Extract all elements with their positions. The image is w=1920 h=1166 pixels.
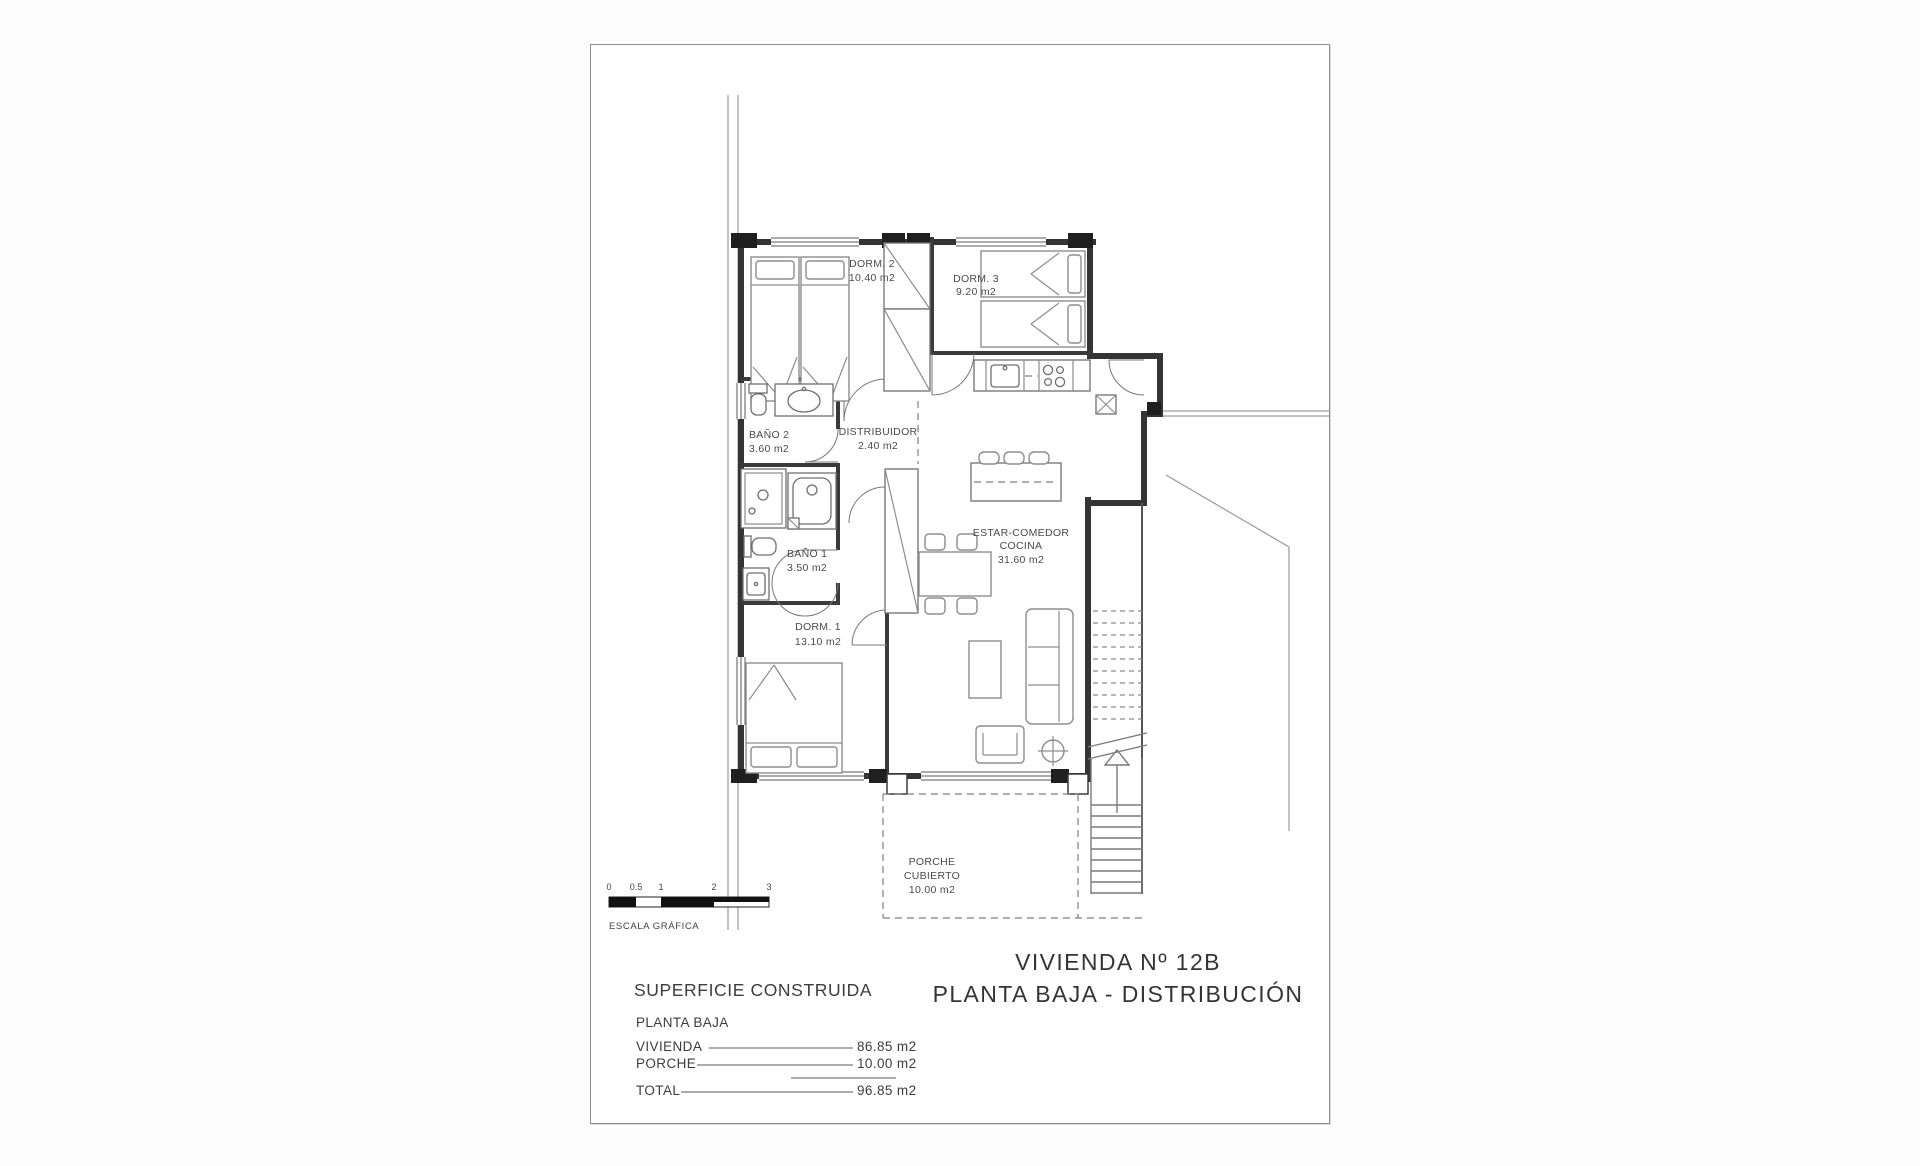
summary-total-value: 96.85 m2 xyxy=(857,1083,917,1098)
scale-tick-2: 2 xyxy=(711,882,716,892)
summary-row-porche-value: 10.00 m2 xyxy=(857,1056,917,1071)
scale-tick-1: 1 xyxy=(658,882,663,892)
summary-subtitle: PLANTA BAJA xyxy=(636,1015,729,1030)
sofa-icon xyxy=(1026,609,1073,724)
area-summary: SUPERFICIE CONSTRUIDA PLANTA BAJA VIVIEN… xyxy=(634,980,917,1098)
dorm2-area: 10.40 m2 xyxy=(849,272,895,284)
drawing-title: VIVIENDA Nº 12B PLANTA BAJA - DISTRIBUCI… xyxy=(933,949,1304,1007)
porche-label-line2: CUBIERTO xyxy=(904,870,960,882)
scale-tick-0: 0 xyxy=(606,882,611,892)
scale-bar: 0 0.5 1 2 3 ESCALA GRÁFICA xyxy=(606,882,771,932)
bano1-fixtures xyxy=(741,469,836,600)
estar-label-line2: COCINA xyxy=(1000,540,1043,552)
kitchen-counter xyxy=(974,360,1116,414)
summary-title: SUPERFICIE CONSTRUIDA xyxy=(634,980,872,1000)
title-line1: VIVIENDA Nº 12B xyxy=(1015,949,1221,975)
summary-row-porche-label: PORCHE xyxy=(636,1056,696,1071)
dorm1-bed xyxy=(746,663,842,773)
coffee-table-icon xyxy=(969,641,1001,698)
dining-set xyxy=(919,534,991,614)
bano1-area: 3.50 m2 xyxy=(787,562,827,574)
title-line2: PLANTA BAJA - DISTRIBUCIÓN xyxy=(933,981,1304,1007)
dorm1-area: 13.10 m2 xyxy=(795,636,841,648)
scale-tick-3: 3 xyxy=(766,882,771,892)
floor-plan-drawing: DORM. 2 10.40 m2 DORM. 3 9.20 m2 BAÑO 2 … xyxy=(591,45,1329,1123)
stairs xyxy=(1088,611,1147,894)
round-table-icon xyxy=(1038,736,1068,766)
estar-area: 31.60 m2 xyxy=(998,554,1044,566)
dorm3-beds xyxy=(981,251,1085,347)
porche-label-line1: PORCHE xyxy=(909,856,956,868)
distribuidor-label: DISTRIBUIDOR xyxy=(839,426,918,438)
summary-row-vivienda-value: 86.85 m2 xyxy=(857,1039,917,1054)
dorm3-area: 9.20 m2 xyxy=(956,286,996,298)
porche-area: 10.00 m2 xyxy=(909,884,955,896)
drawing-sheet: DORM. 2 10.40 m2 DORM. 3 9.20 m2 BAÑO 2 … xyxy=(590,44,1330,1124)
bano2-fixtures xyxy=(749,384,833,416)
dorm3-label: DORM. 3 xyxy=(953,273,999,285)
estar-label-line1: ESTAR-COMEDOR xyxy=(973,527,1070,539)
scale-caption: ESCALA GRÁFICA xyxy=(609,921,699,932)
scale-tick-05: 0.5 xyxy=(630,882,643,892)
dorm2-label: DORM. 2 xyxy=(849,258,895,270)
bano2-label: BAÑO 2 xyxy=(749,428,789,441)
distribuidor-area: 2.40 m2 xyxy=(858,440,898,452)
bano1-label: BAÑO 1 xyxy=(787,547,827,560)
summary-total-label: TOTAL xyxy=(636,1083,680,1098)
dorm1-label: DORM. 1 xyxy=(795,621,841,633)
kitchen-island xyxy=(971,452,1061,501)
living-furniture xyxy=(969,609,1073,766)
summary-row-vivienda-label: VIVIENDA xyxy=(636,1039,702,1054)
bano2-area: 3.60 m2 xyxy=(749,443,789,455)
